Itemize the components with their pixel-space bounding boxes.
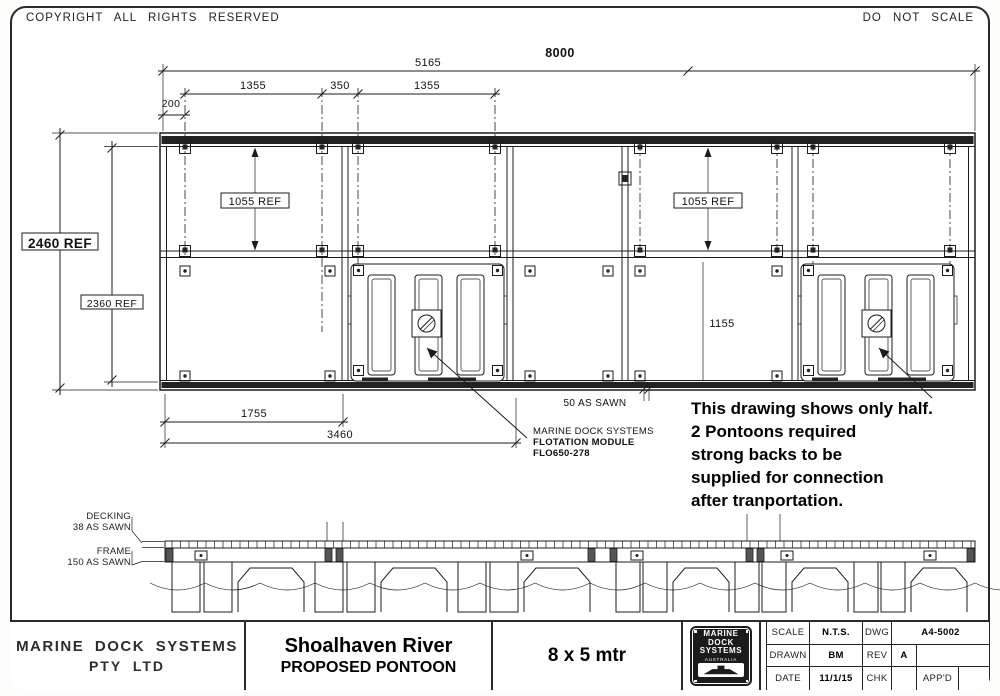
- title-block: MARINE DOCK SYSTEMS PTY LTD Shoalhaven R…: [10, 620, 990, 690]
- frame-title: FRAME: [28, 547, 131, 558]
- appd-label: APP'D: [917, 667, 959, 690]
- date-value: 11/1/15: [810, 667, 863, 690]
- dim-1355-a: 1355: [240, 80, 266, 92]
- side-elevation: [132, 514, 1000, 612]
- float-front: [735, 562, 759, 612]
- module-label-line1: MARINE DOCK SYSTEMS: [533, 426, 654, 437]
- float-front: [458, 562, 486, 612]
- end-post: [610, 549, 617, 562]
- frame-label: FRAME 150 AS SAWN: [28, 547, 131, 568]
- float-rear: [673, 568, 729, 612]
- note-line: This drawing shows only half.: [691, 397, 959, 420]
- module-label-line3: FLO650-278: [533, 448, 590, 459]
- float-rear: [911, 568, 967, 612]
- chk-label: CHK: [863, 667, 892, 690]
- end-post: [336, 549, 343, 562]
- screw-clamp-symbol: [603, 266, 613, 276]
- company-name: MARINE DOCK SYSTEMS: [16, 638, 238, 655]
- end-post: [746, 549, 753, 562]
- half-drawing-note: This drawing shows only half. 2 Pontoons…: [691, 397, 959, 512]
- dwg-value: A4-5002: [892, 622, 990, 645]
- float-front: [490, 562, 518, 612]
- module-label-line2: FLOTATION MODULE: [533, 437, 635, 448]
- end-post: [757, 549, 764, 562]
- fields-cell: SCALE N.T.S. DWG A4-5002 DRAWN BM REV A …: [761, 622, 990, 690]
- logo-cell: MARINE DOCK SYSTEMS AUSTRALIA: [683, 622, 761, 690]
- drawn-label: DRAWN: [767, 645, 810, 668]
- dim-1355-b: 1355: [414, 80, 440, 92]
- screw-clamp-symbol: [772, 266, 782, 276]
- decking-dim: 38 AS SAWN: [28, 523, 131, 534]
- dim-1055-left: 1055 REF: [229, 196, 282, 208]
- screw-clamp-symbol: [180, 266, 190, 276]
- decking-title: DECKING: [28, 512, 131, 523]
- decking-label: DECKING 38 AS SAWN: [28, 512, 131, 533]
- project-name: Shoalhaven River: [285, 635, 453, 658]
- scale-label: SCALE: [767, 622, 810, 645]
- rev-value: A: [892, 645, 917, 668]
- note-line: 2 Pontoons required: [691, 420, 959, 443]
- frame-dim: 150 AS SAWN: [28, 558, 131, 569]
- screw-clamp-symbol: [635, 371, 645, 381]
- appd-value: [959, 667, 990, 690]
- end-post: [967, 549, 974, 562]
- float-rear: [238, 568, 304, 612]
- drawn-value: BM: [810, 645, 863, 668]
- rev-empty: [917, 645, 990, 668]
- logo-line4: AUSTRALIA: [705, 657, 737, 662]
- dim-2460: 2460 REF: [28, 236, 92, 251]
- end-post: [325, 549, 332, 562]
- float-front: [315, 562, 343, 612]
- pontoon-size: 8 x 5 mtr: [548, 645, 626, 667]
- screw-clamp-symbol: [603, 371, 613, 381]
- scale-value: N.T.S.: [810, 622, 863, 645]
- end-post: [588, 549, 595, 562]
- fields-grid: SCALE N.T.S. DWG A4-5002 DRAWN BM REV A …: [766, 622, 990, 690]
- dim-3460: 3460: [327, 429, 353, 441]
- dim-1055-right: 1055 REF: [682, 196, 735, 208]
- pontoon-drawing: 8000 5165 1355 350 1355 200 1055 REF 105…: [0, 0, 1000, 696]
- date-label: DATE: [767, 667, 810, 690]
- note-line: after tranportation.: [691, 489, 959, 512]
- dim-5165: 5165: [415, 57, 441, 69]
- screw-clamp-symbol: [525, 371, 535, 381]
- dim-8000: 8000: [545, 46, 574, 60]
- screw-clamp-symbol: [772, 371, 782, 381]
- note-line: strong backs to be: [691, 443, 959, 466]
- note-line: supplied for connection: [691, 466, 959, 489]
- dim-200: 200: [162, 98, 181, 110]
- dim-2360: 2360 REF: [87, 298, 137, 310]
- size-cell: 8 x 5 mtr: [493, 622, 683, 690]
- float-rear: [381, 568, 447, 612]
- screw-clamp-symbol: [325, 371, 335, 381]
- dwg-label: DWG: [863, 622, 892, 645]
- dim-350: 350: [330, 80, 350, 92]
- company-logo: MARINE DOCK SYSTEMS AUSTRALIA: [690, 626, 752, 686]
- dim-50-as-sawn: 50 AS SAWN: [563, 398, 626, 409]
- chk-value: [892, 667, 917, 690]
- dim-1755: 1755: [241, 408, 267, 420]
- logo-line3: SYSTEMS: [700, 647, 742, 656]
- cleat-icon: [698, 663, 744, 677]
- screw-clamp-symbol: [325, 266, 335, 276]
- float-front: [881, 562, 905, 612]
- rev-label: REV: [863, 645, 892, 668]
- screw-clamp-symbol: [635, 266, 645, 276]
- drawing-title: PROPOSED PONTOON: [281, 659, 457, 677]
- company-cell: MARINE DOCK SYSTEMS PTY LTD: [10, 622, 246, 690]
- screw-clamp-symbol: [180, 371, 190, 381]
- screw-clamp-symbol: [525, 266, 535, 276]
- end-post: [166, 549, 173, 562]
- project-cell: Shoalhaven River PROPOSED PONTOON: [246, 622, 493, 690]
- company-suffix: PTY LTD: [89, 658, 165, 674]
- dim-1155: 1155: [709, 318, 734, 330]
- float-front: [204, 562, 232, 612]
- drawing-sheet: COPYRIGHT ALL RIGHTS RESERVED DO NOT SCA…: [0, 0, 1000, 696]
